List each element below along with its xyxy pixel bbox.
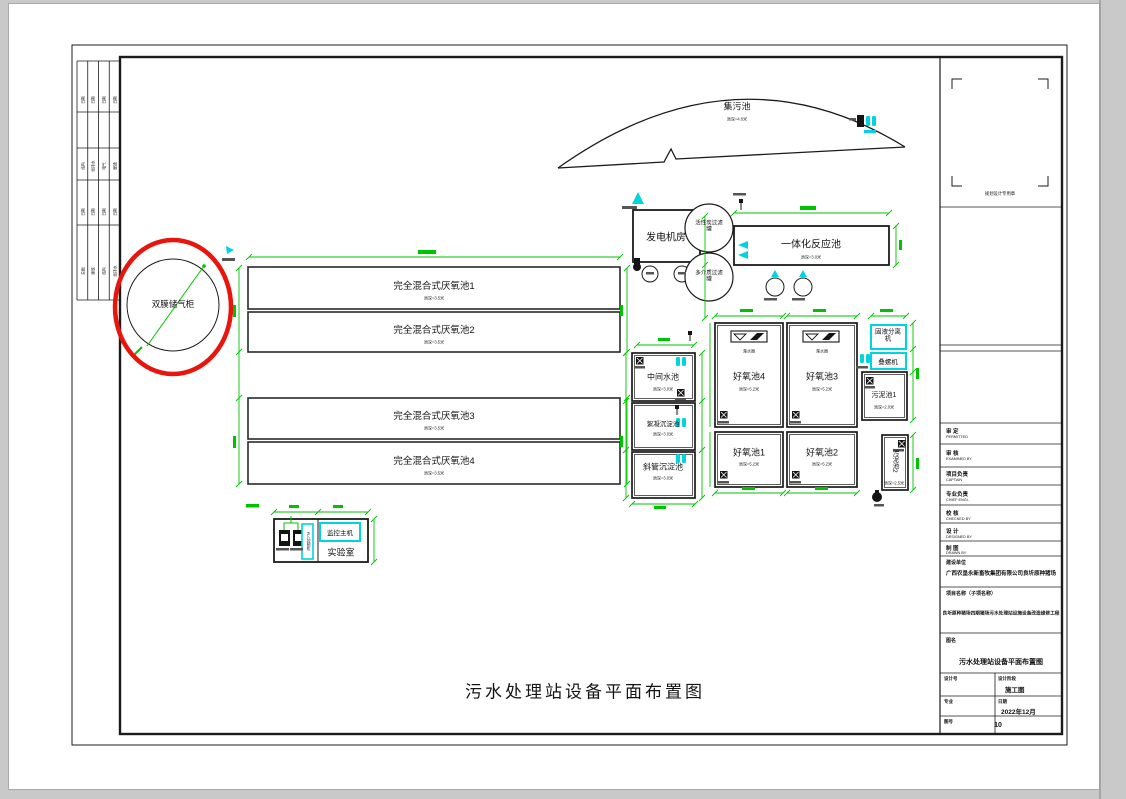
floc-pool-depth: 池深=3.0米: [653, 431, 673, 437]
sheet-label: 图号: [944, 719, 953, 725]
signature-cell: 日期: [80, 96, 86, 103]
aerobic-2-label: 好氧池2: [806, 446, 838, 459]
sludge-2-label: 污泥池2: [889, 449, 899, 472]
drawing-main-title: 污水处理站设备平面布置图: [465, 678, 705, 703]
sump-depth: 池深=4.0米: [727, 116, 747, 122]
owner-label: 建设单位: [946, 559, 966, 566]
monitor-host-label: 监控主机: [327, 527, 353, 537]
signature-cell: 电气: [101, 162, 107, 169]
decanter-icon: [731, 331, 839, 342]
signature-cell: 给排水: [112, 265, 118, 276]
inclined-pool-label: 斜管沉淀池: [643, 462, 683, 473]
media-filter-label: 多介质过滤罐: [693, 271, 725, 284]
date-label: 日期: [998, 699, 1007, 705]
signature-cell: 总图: [80, 267, 86, 274]
stamp-corner-marks: [952, 79, 1048, 186]
design-no-label: 设计号: [944, 676, 958, 682]
screw-press-label: 叠螺机: [878, 356, 898, 366]
anaerobic-3-label: 完全混合式厌氧池3: [393, 408, 474, 422]
anaerobic-4-depth: 池深=3.5米: [424, 470, 444, 476]
anaerobic-2-label: 完全混合式厌氧池2: [393, 322, 474, 336]
role-permitted-en: PERMITTED: [946, 435, 968, 439]
role-chief-en: CHIEF ENGI.: [946, 498, 969, 502]
laboratory-label: 实验室: [327, 546, 354, 559]
sludge-1-label: 污泥池1: [872, 390, 897, 400]
signature-cell: 暖通: [112, 162, 118, 169]
role-examined-en: EXAMINED BY: [946, 457, 972, 461]
integrated-tank-depth: 池深=3.0米: [801, 254, 821, 260]
middle-pool-depth: 池深=3.0米: [653, 386, 673, 392]
sludge-1-depth: 池深=2.0米: [874, 404, 894, 410]
role-checked-en: CHECKED BY: [946, 517, 971, 521]
signature-cell: 结构: [80, 162, 86, 169]
aerobic-4-depth: 池深=5.2米: [739, 386, 759, 392]
date-value: 2022年12月: [1001, 706, 1036, 716]
aerobic-1-label: 好氧池1: [733, 446, 765, 459]
aerobic-3-depth: 池深=5.2米: [812, 386, 832, 392]
dosing-tank-icon: [766, 278, 784, 296]
generator-room-label: 发电机房: [646, 229, 686, 244]
sheet-frame: [72, 45, 1067, 745]
decanter-label: 滗水器: [743, 348, 755, 354]
signature-cell: 日期: [112, 96, 118, 103]
screenshot-root: 双膜储气柜 集污池 池深=4.0米 发电机房 活性炭过滤罐 多介质过滤罐 一体化…: [0, 0, 1126, 799]
signature-cell: 建筑: [90, 267, 96, 274]
decanter-label: 滗水器: [816, 348, 828, 354]
signature-cell: 日期: [101, 96, 107, 103]
role-captain-en: CAPTAIN: [946, 478, 962, 482]
integrated-tank-label: 一体化反应池: [781, 236, 841, 251]
anaerobic-4-label: 完全混合式厌氧池4: [393, 453, 474, 467]
aerobic-3-label: 好氧池3: [806, 370, 838, 383]
figure-label: 图名: [946, 637, 956, 644]
signature-cell: 日期: [80, 208, 86, 215]
aerobic-2-depth: 池深=5.2米: [812, 461, 832, 467]
signature-cell: 日期: [90, 208, 96, 215]
aerobic-tanks-outline: [715, 323, 857, 487]
carbon-filter-label: 活性炭过滤罐: [693, 221, 725, 234]
owner-name: 广西农垦永新畜牧集团有限公司良圻原种猪场: [946, 569, 1056, 577]
sump-label: 集污池: [723, 100, 750, 113]
role-designed-en: DESIGNED BY: [946, 535, 972, 539]
major-label: 专业: [944, 699, 953, 705]
inclined-pool-depth: 池深=3.0米: [653, 475, 673, 481]
signature-cell: 日期: [90, 96, 96, 103]
floc-pool-label: 絮凝沉淀池: [647, 418, 680, 428]
anaerobic-1-depth: 池深=3.5米: [424, 295, 444, 301]
sludge-2-depth: 池深=2.5米: [884, 480, 904, 486]
anaerobic-1-label: 完全混合式厌氧池1: [393, 278, 474, 292]
gas-holder-label: 双膜储气柜: [152, 298, 195, 310]
aerobic-1-depth: 池深=5.2米: [739, 461, 759, 467]
middle-pool-label: 中间水池: [647, 372, 679, 383]
signature-cell: 给排水: [90, 160, 96, 171]
sheet-number: 10: [994, 722, 1002, 729]
aerobic-4-label: 好氧池4: [733, 370, 765, 383]
figure-name: 污水处理站设备平面布置图: [959, 657, 1043, 667]
control-cabinet-label: PLC控制柜: [305, 532, 311, 550]
stamp-caption: 规划设计专用章: [985, 190, 1015, 196]
signature-cell: 日期: [112, 208, 118, 215]
anaerobic-3-depth: 池深=3.5米: [424, 425, 444, 431]
stage-label: 设计阶段: [998, 676, 1016, 682]
signature-cell: 结构: [101, 267, 107, 274]
stage-value: 施工图: [1005, 684, 1025, 694]
signature-cell: 日期: [101, 208, 107, 215]
separator-label: 固液分离机: [873, 329, 903, 344]
dosing-tank-icon: [794, 278, 812, 296]
project-label: 项目名称（子项名称）: [946, 590, 996, 597]
role-drawn-en: DRAWN BY: [946, 551, 966, 555]
project-name: 良圻原种猪场四期猪场污水处理站设施设备改造维修工程: [943, 610, 1060, 617]
anaerobic-2-depth: 池深=3.5米: [424, 339, 444, 345]
